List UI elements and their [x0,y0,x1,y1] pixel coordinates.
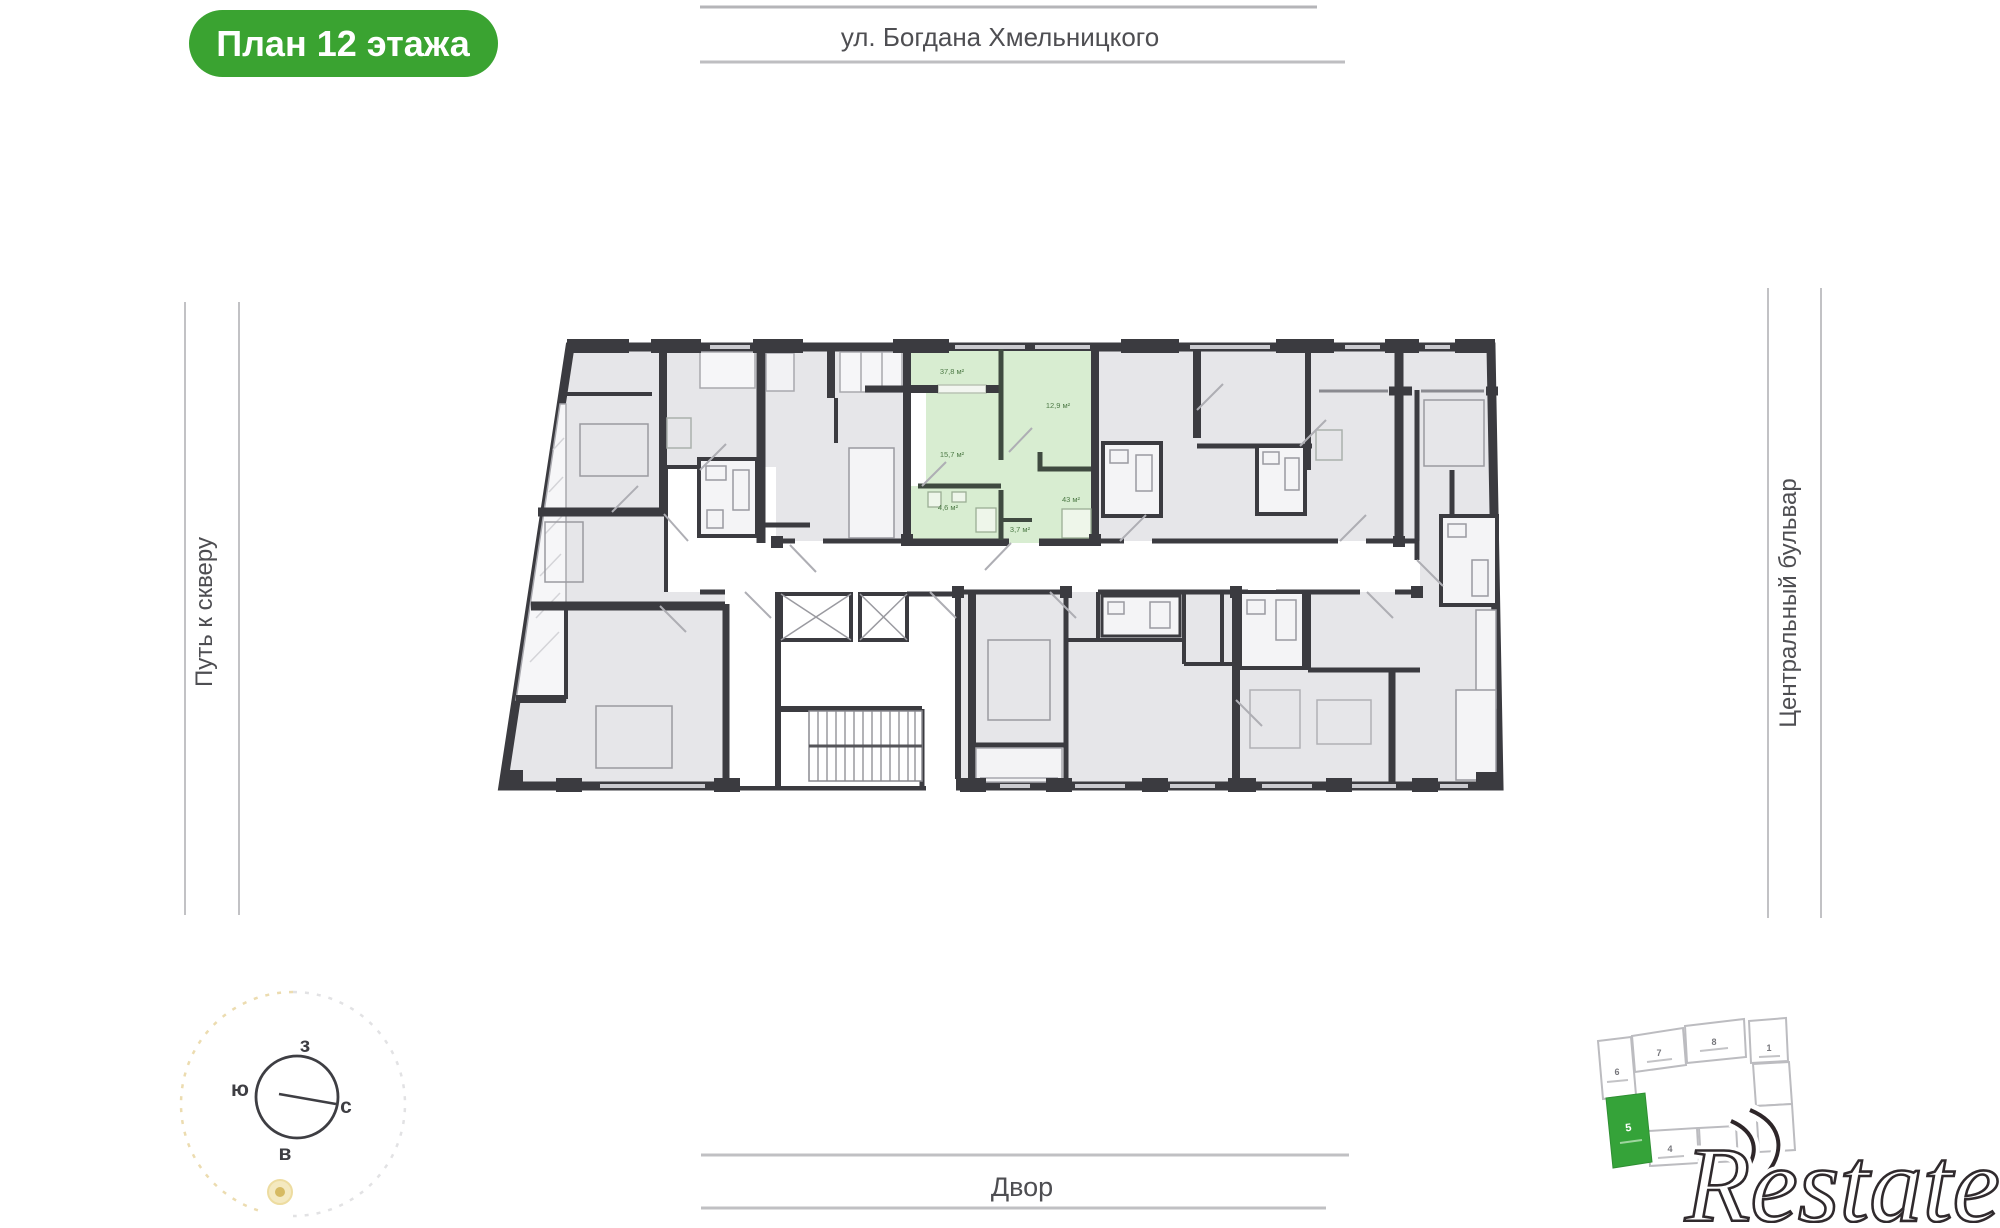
svg-text:6: 6 [1614,1067,1619,1077]
svg-text:Центральный бульвар: Центральный бульвар [1775,478,1802,728]
svg-text:ул. Богдана Хмельницкого: ул. Богдана Хмельницкого [841,22,1159,52]
svg-text:Двор: Двор [991,1172,1053,1202]
svg-text:15,7 м²: 15,7 м² [940,450,965,459]
svg-text:12,9 м²: 12,9 м² [1046,401,1071,410]
svg-text:с: с [340,1095,352,1118]
svg-text:37,8 м²: 37,8 м² [940,367,965,376]
svg-text:4: 4 [1667,1144,1672,1154]
svg-text:7: 7 [1656,1048,1661,1058]
svg-text:3,7 м²: 3,7 м² [1010,525,1031,534]
svg-text:в: в [279,1142,292,1165]
svg-text:Restate: Restate [1684,1127,2000,1223]
svg-text:Путь к скверу: Путь к скверу [191,537,218,687]
svg-text:План 12 этажа: План 12 этажа [216,23,471,64]
svg-text:ю: ю [231,1078,249,1101]
svg-text:1: 1 [1766,1043,1771,1053]
svg-text:з: з [300,1034,310,1057]
svg-text:8: 8 [1711,1037,1716,1047]
svg-text:4,6 м²: 4,6 м² [938,503,959,512]
svg-text:43 м²: 43 м² [1062,495,1081,504]
